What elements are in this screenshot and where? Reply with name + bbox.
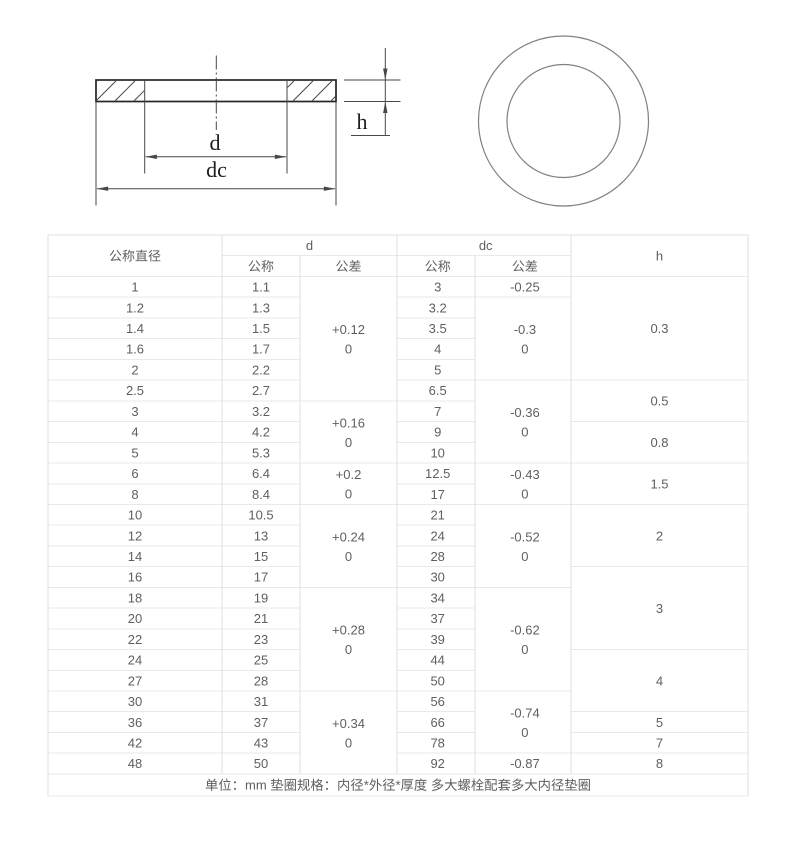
svg-text:0: 0: [345, 435, 352, 450]
svg-text:dc: dc: [479, 238, 493, 253]
svg-text:h: h: [357, 109, 368, 134]
svg-text:0: 0: [345, 549, 352, 564]
svg-text:0: 0: [521, 549, 528, 564]
svg-text:+0.16: +0.16: [332, 415, 365, 430]
svg-text:48: 48: [128, 756, 142, 771]
svg-text:1: 1: [131, 280, 138, 295]
svg-text:d: d: [306, 238, 313, 253]
svg-text:24: 24: [430, 528, 444, 543]
svg-text:23: 23: [254, 632, 268, 647]
svg-text:12.5: 12.5: [425, 466, 450, 481]
svg-text:5.3: 5.3: [252, 445, 270, 460]
svg-text:37: 37: [430, 611, 444, 626]
svg-text:6: 6: [131, 466, 138, 481]
svg-text:6.5: 6.5: [429, 383, 447, 398]
svg-text:50: 50: [254, 756, 268, 771]
svg-text:39: 39: [430, 632, 444, 647]
svg-text:0.3: 0.3: [650, 321, 668, 336]
svg-text:20: 20: [128, 611, 142, 626]
svg-text:3.5: 3.5: [429, 321, 447, 336]
svg-text:7: 7: [656, 736, 663, 751]
svg-text:0: 0: [345, 342, 352, 357]
svg-text:3: 3: [656, 601, 663, 616]
svg-text:30: 30: [128, 694, 142, 709]
svg-text:28: 28: [254, 673, 268, 688]
svg-text:4: 4: [131, 425, 138, 440]
svg-text:3: 3: [434, 280, 441, 295]
svg-text:6.4: 6.4: [252, 466, 270, 481]
svg-text:28: 28: [430, 549, 444, 564]
svg-text:0: 0: [345, 642, 352, 657]
svg-text:1.3: 1.3: [252, 300, 270, 315]
svg-text:7: 7: [434, 404, 441, 419]
svg-text:13: 13: [254, 528, 268, 543]
svg-text:+0.28: +0.28: [332, 623, 365, 638]
svg-text:d: d: [210, 130, 221, 155]
svg-text:+0.34: +0.34: [332, 716, 365, 731]
svg-text:21: 21: [430, 508, 444, 523]
svg-text:36: 36: [128, 715, 142, 730]
svg-text:+0.2: +0.2: [336, 467, 362, 482]
svg-text:h: h: [656, 248, 663, 263]
svg-text:1.1: 1.1: [252, 280, 270, 295]
svg-text:5: 5: [131, 445, 138, 460]
svg-text:34: 34: [430, 590, 444, 605]
svg-text:0: 0: [521, 487, 528, 502]
svg-text:0: 0: [521, 342, 528, 357]
svg-text:19: 19: [254, 590, 268, 605]
svg-text:30: 30: [430, 570, 444, 585]
svg-text:-0.43: -0.43: [510, 467, 540, 482]
svg-text:-0.3: -0.3: [514, 322, 536, 337]
svg-text:3.2: 3.2: [429, 300, 447, 315]
svg-text:21: 21: [254, 611, 268, 626]
svg-text:10.5: 10.5: [248, 508, 273, 523]
svg-text:10: 10: [128, 508, 142, 523]
svg-text:-0.87: -0.87: [510, 756, 540, 771]
svg-text:1.7: 1.7: [252, 342, 270, 357]
svg-text:9: 9: [434, 425, 441, 440]
svg-text:92: 92: [430, 756, 444, 771]
svg-text:5: 5: [656, 715, 663, 730]
svg-text:50: 50: [430, 673, 444, 688]
svg-text:1.6: 1.6: [126, 342, 144, 357]
svg-text:8: 8: [656, 756, 663, 771]
svg-text:0.5: 0.5: [650, 394, 668, 409]
svg-text:dc: dc: [206, 157, 227, 182]
svg-text:0: 0: [521, 425, 528, 440]
svg-text:-0.36: -0.36: [510, 405, 540, 420]
svg-text:2.5: 2.5: [126, 383, 144, 398]
svg-text:1.2: 1.2: [126, 300, 144, 315]
svg-text:8: 8: [131, 487, 138, 502]
svg-text:0: 0: [345, 735, 352, 750]
svg-text:0: 0: [521, 642, 528, 657]
svg-text:66: 66: [430, 715, 444, 730]
svg-text:-0.52: -0.52: [510, 529, 540, 544]
svg-text:2: 2: [656, 528, 663, 543]
svg-text:10: 10: [430, 445, 444, 460]
svg-text:+0.24: +0.24: [332, 529, 365, 544]
svg-text:3: 3: [131, 404, 138, 419]
svg-text:16: 16: [128, 570, 142, 585]
svg-text:-0.62: -0.62: [510, 623, 540, 638]
svg-text:-0.74: -0.74: [510, 706, 540, 721]
svg-text:3.2: 3.2: [252, 404, 270, 419]
svg-text:44: 44: [430, 653, 444, 668]
svg-text:2.2: 2.2: [252, 363, 270, 378]
svg-text:17: 17: [254, 570, 268, 585]
svg-text:0: 0: [521, 725, 528, 740]
svg-text:31: 31: [254, 694, 268, 709]
svg-text:78: 78: [430, 736, 444, 751]
svg-text:1.4: 1.4: [126, 321, 144, 336]
svg-text:0: 0: [345, 487, 352, 502]
svg-text:56: 56: [430, 694, 444, 709]
svg-text:2: 2: [131, 363, 138, 378]
svg-text:15: 15: [254, 549, 268, 564]
svg-text:18: 18: [128, 590, 142, 605]
svg-text:27: 27: [128, 673, 142, 688]
svg-text:*: *: [396, 778, 401, 793]
svg-text:37: 37: [254, 715, 268, 730]
svg-text:25: 25: [254, 653, 268, 668]
svg-text:+0.12: +0.12: [332, 322, 365, 337]
svg-text:12: 12: [128, 528, 142, 543]
svg-text:22: 22: [128, 632, 142, 647]
svg-text:42: 42: [128, 736, 142, 751]
svg-text:14: 14: [128, 549, 142, 564]
svg-text:-0.25: -0.25: [510, 280, 540, 295]
svg-text:17: 17: [430, 487, 444, 502]
svg-text:4: 4: [656, 673, 663, 688]
svg-text:1.5: 1.5: [252, 321, 270, 336]
svg-text:4: 4: [434, 342, 441, 357]
svg-text:*: *: [364, 778, 369, 793]
svg-text:4.2: 4.2: [252, 425, 270, 440]
svg-text:1.5: 1.5: [650, 476, 668, 491]
svg-text:0.8: 0.8: [650, 435, 668, 450]
svg-text:24: 24: [128, 653, 142, 668]
svg-text:2.7: 2.7: [252, 383, 270, 398]
svg-text:mm: mm: [245, 778, 267, 793]
svg-text:8.4: 8.4: [252, 487, 270, 502]
svg-text:43: 43: [254, 736, 268, 751]
svg-text:5: 5: [434, 363, 441, 378]
